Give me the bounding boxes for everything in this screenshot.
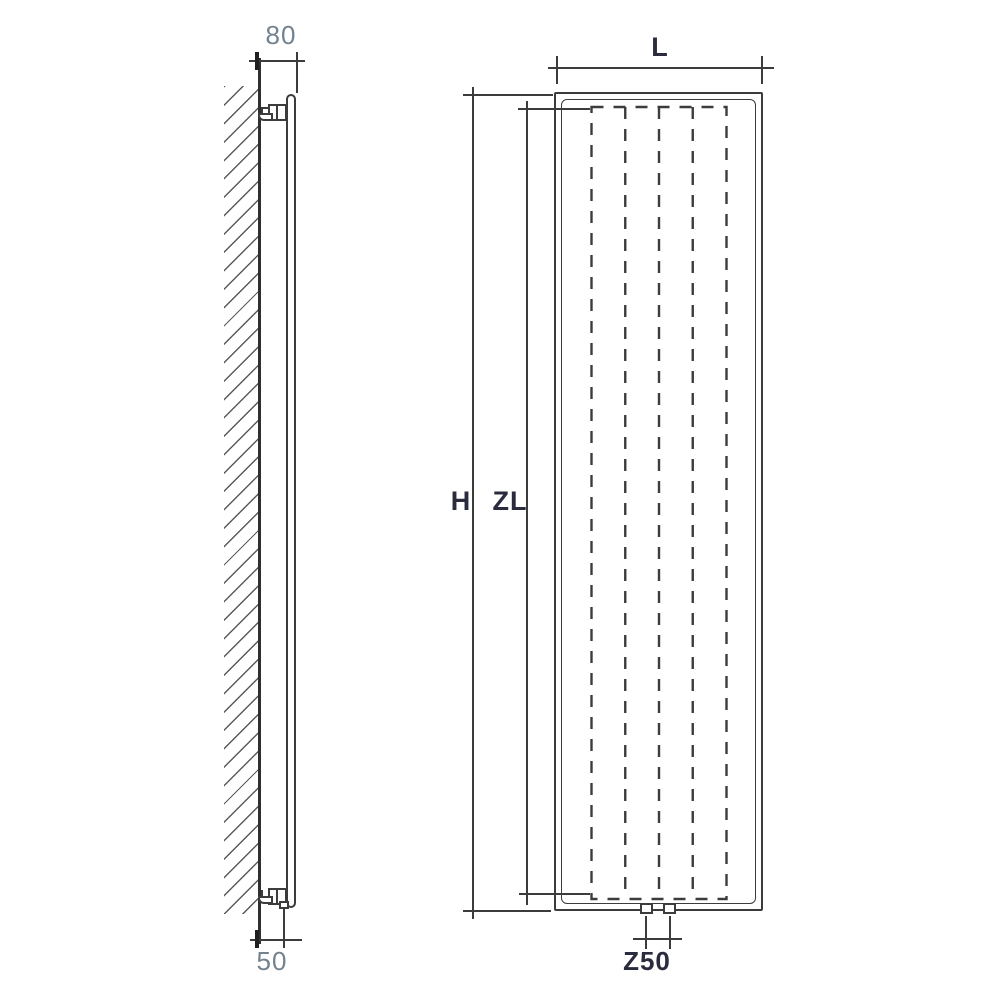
valve-pipe-line (283, 908, 285, 948)
wall-face-line (258, 58, 261, 944)
dim-Z50-label: Z50 (611, 948, 683, 974)
bracket-bottom-foot (258, 896, 273, 904)
connector-right-stub (663, 903, 676, 914)
dim-ZL-extension-top (518, 108, 590, 110)
connector-left-stub (640, 903, 653, 914)
dim-ZL-extension-bottom (519, 893, 590, 895)
dim-Z50-line (633, 938, 682, 940)
bracket-bottom-divider (276, 889, 278, 904)
dim-H-label: H (447, 488, 475, 515)
bracket-top-divider (276, 105, 278, 120)
radiator-dimension-diagram: 80 50 (0, 0, 1000, 1000)
dim-80-tick-left (255, 52, 259, 70)
dim-L-tick-left (556, 56, 558, 84)
dim-ZL-label: ZL (488, 488, 532, 515)
dim-80-label: 80 (258, 22, 304, 48)
dim-Z50-extension-right (669, 916, 671, 949)
wall-hatching (224, 86, 259, 914)
dim-50-label: 50 (250, 948, 294, 974)
dim-Z50-extension-left (645, 916, 647, 949)
dim-L-tick-right (761, 56, 763, 84)
bracket-top-foot (258, 113, 273, 121)
hidden-panel-dashed-outline (586, 96, 734, 908)
dim-L-label: L (638, 34, 682, 61)
dim-L-line (548, 67, 774, 69)
dim-H-extension-top (463, 94, 553, 96)
dim-H-extension-bottom (463, 910, 551, 912)
radiator-panel-profile (286, 94, 296, 908)
dim-80-extension-right (296, 52, 298, 93)
